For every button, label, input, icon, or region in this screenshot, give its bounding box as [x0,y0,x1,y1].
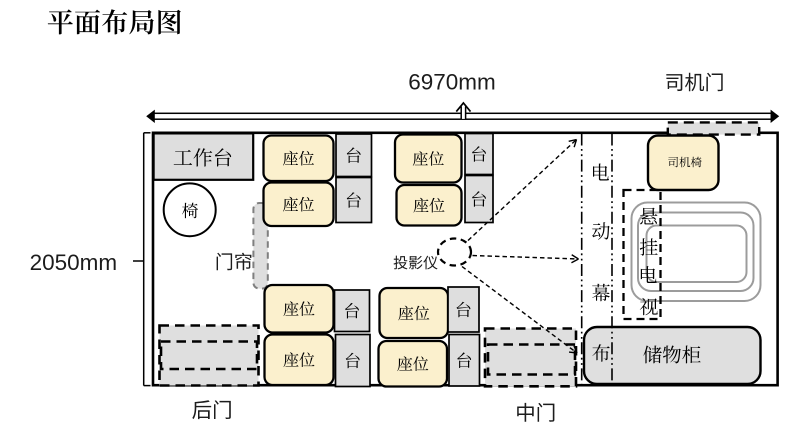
svg-text:2050mm: 2050mm [30,250,118,275]
svg-text:6970mm: 6970mm [408,70,496,95]
